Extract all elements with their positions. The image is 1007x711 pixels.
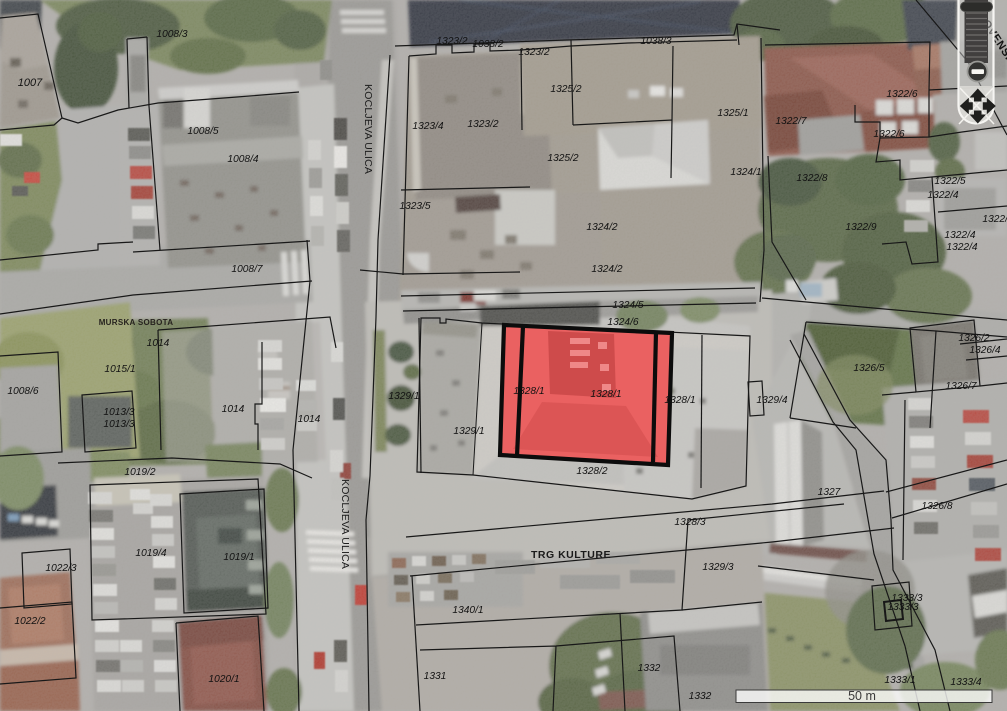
svg-text:1328/2: 1328/2 xyxy=(576,466,607,477)
svg-text:1015/1: 1015/1 xyxy=(104,364,135,375)
svg-text:1008/5: 1008/5 xyxy=(187,126,218,137)
svg-text:1324/6: 1324/6 xyxy=(607,317,638,328)
svg-text:1325/1: 1325/1 xyxy=(717,108,748,119)
svg-text:1324/2: 1324/2 xyxy=(591,264,622,275)
svg-text:1038/2: 1038/2 xyxy=(472,39,503,50)
svg-text:1008/7: 1008/7 xyxy=(231,264,262,275)
svg-text:1329/3: 1329/3 xyxy=(702,562,733,573)
svg-text:MURSKA SOBOTA: MURSKA SOBOTA xyxy=(99,318,174,327)
svg-text:1324/5: 1324/5 xyxy=(612,300,643,311)
svg-text:1324/2: 1324/2 xyxy=(586,222,617,233)
svg-text:1333/4: 1333/4 xyxy=(950,677,981,688)
svg-text:1022/2: 1022/2 xyxy=(14,616,45,627)
svg-text:1324/1: 1324/1 xyxy=(730,167,761,178)
svg-text:1322/4: 1322/4 xyxy=(946,242,977,253)
svg-text:KOCLJEVA ULICA: KOCLJEVA ULICA xyxy=(339,479,351,569)
svg-text:1327: 1327 xyxy=(818,487,841,498)
svg-text:1329/1: 1329/1 xyxy=(453,426,484,437)
svg-text:1008/6: 1008/6 xyxy=(7,386,38,397)
svg-text:1019/2: 1019/2 xyxy=(124,467,155,478)
svg-text:1326/7: 1326/7 xyxy=(945,381,976,392)
svg-text:KOCLJEVA ULICA: KOCLJEVA ULICA xyxy=(362,84,374,174)
svg-text:1322/6: 1322/6 xyxy=(886,89,917,100)
svg-text:1322/3: 1322/3 xyxy=(982,214,1007,225)
svg-text:1020/1: 1020/1 xyxy=(208,674,239,685)
svg-text:1013/3: 1013/3 xyxy=(103,419,134,430)
svg-text:1323/2: 1323/2 xyxy=(436,36,467,47)
svg-text:1328/3: 1328/3 xyxy=(674,517,705,528)
svg-text:1323/2: 1323/2 xyxy=(518,47,549,58)
svg-text:1333/1: 1333/1 xyxy=(884,675,915,686)
svg-text:1326/8: 1326/8 xyxy=(921,501,952,512)
svg-text:1328/1: 1328/1 xyxy=(664,395,695,406)
svg-text:1328/1: 1328/1 xyxy=(590,389,621,400)
svg-text:1322/5: 1322/5 xyxy=(934,176,965,187)
svg-text:1329/4: 1329/4 xyxy=(756,395,787,406)
svg-text:1333/3: 1333/3 xyxy=(887,602,918,613)
svg-text:1007: 1007 xyxy=(18,77,43,89)
svg-text:1331: 1331 xyxy=(424,671,447,682)
svg-text:1322/6: 1322/6 xyxy=(873,129,904,140)
svg-text:1322/9: 1322/9 xyxy=(845,222,876,233)
svg-text:1329/1: 1329/1 xyxy=(388,391,419,402)
svg-text:1326/5: 1326/5 xyxy=(853,363,884,374)
svg-text:1008/3: 1008/3 xyxy=(156,29,187,40)
svg-text:50 m: 50 m xyxy=(848,689,876,703)
svg-text:1322/8: 1322/8 xyxy=(796,173,827,184)
svg-text:1014: 1014 xyxy=(222,404,245,415)
svg-text:1340/1: 1340/1 xyxy=(452,605,483,616)
svg-text:1014: 1014 xyxy=(147,338,170,349)
svg-text:1013/3: 1013/3 xyxy=(103,407,134,418)
svg-text:1322/7: 1322/7 xyxy=(775,116,806,127)
svg-text:1328/1: 1328/1 xyxy=(513,386,544,397)
svg-text:1332: 1332 xyxy=(689,691,712,702)
svg-text:1019/1: 1019/1 xyxy=(223,552,254,563)
svg-text:1326/4: 1326/4 xyxy=(969,345,1000,356)
svg-text:1008/4: 1008/4 xyxy=(227,154,258,165)
svg-text:1325/2: 1325/2 xyxy=(550,84,581,95)
svg-text:1014: 1014 xyxy=(298,414,321,425)
svg-text:1325/2: 1325/2 xyxy=(547,153,578,164)
svg-text:1332: 1332 xyxy=(638,663,661,674)
svg-text:TRG KULTURE: TRG KULTURE xyxy=(531,549,611,561)
svg-text:1022/3: 1022/3 xyxy=(45,563,76,574)
svg-text:1322/4: 1322/4 xyxy=(927,190,958,201)
svg-text:1326/2: 1326/2 xyxy=(958,333,989,344)
svg-text:1038/3: 1038/3 xyxy=(640,36,671,47)
svg-text:1323/5: 1323/5 xyxy=(399,201,430,212)
svg-text:1019/4: 1019/4 xyxy=(135,548,166,559)
svg-text:1322/4: 1322/4 xyxy=(944,230,975,241)
svg-text:1323/4: 1323/4 xyxy=(412,121,443,132)
svg-text:1323/2: 1323/2 xyxy=(467,119,498,130)
